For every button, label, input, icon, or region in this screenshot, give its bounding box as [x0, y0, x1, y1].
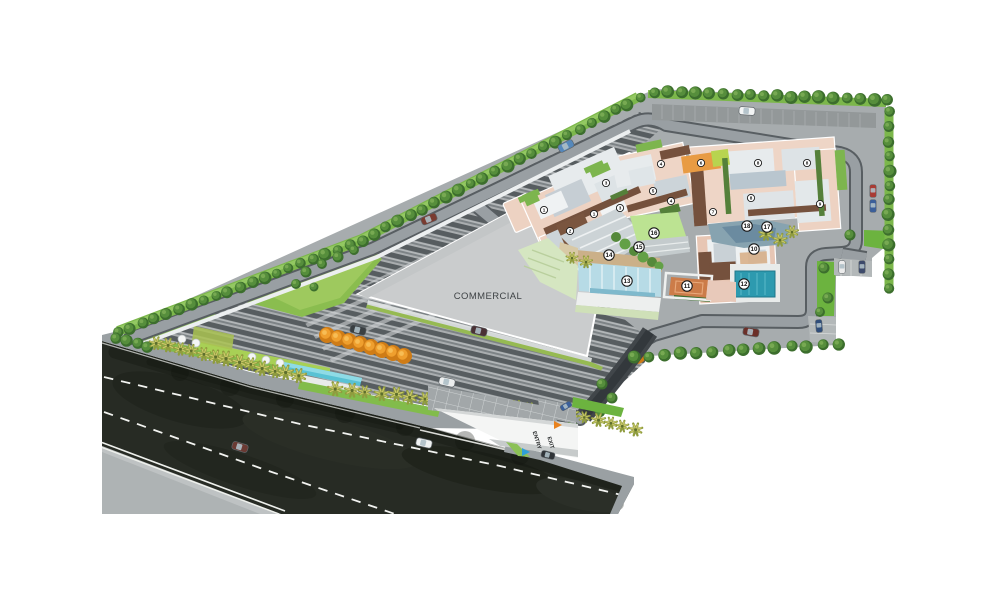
- svg-text:15: 15: [636, 244, 643, 251]
- svg-text:9: 9: [819, 202, 822, 207]
- svg-text:3: 3: [605, 181, 608, 186]
- svg-text:4: 4: [670, 199, 673, 204]
- svg-text:14: 14: [606, 252, 613, 259]
- svg-text:18: 18: [744, 223, 751, 230]
- svg-text:6: 6: [700, 161, 703, 166]
- svg-text:5: 5: [652, 189, 655, 194]
- svg-text:4: 4: [660, 162, 663, 167]
- svg-text:2: 2: [569, 229, 572, 234]
- svg-text:8: 8: [757, 161, 760, 166]
- svg-text:12: 12: [741, 281, 748, 288]
- svg-text:8: 8: [806, 161, 809, 166]
- svg-text:16: 16: [651, 230, 658, 237]
- svg-text:10: 10: [751, 246, 758, 253]
- svg-text:3: 3: [619, 206, 622, 211]
- svg-text:17: 17: [764, 224, 771, 231]
- svg-text:1: 1: [543, 208, 546, 213]
- svg-text:8: 8: [750, 196, 753, 201]
- svg-text:11: 11: [684, 283, 691, 290]
- svg-text:COMMERCIAL: COMMERCIAL: [454, 291, 522, 302]
- svg-text:1: 1: [593, 212, 596, 217]
- svg-text:7: 7: [712, 210, 715, 215]
- svg-text:13: 13: [624, 278, 631, 285]
